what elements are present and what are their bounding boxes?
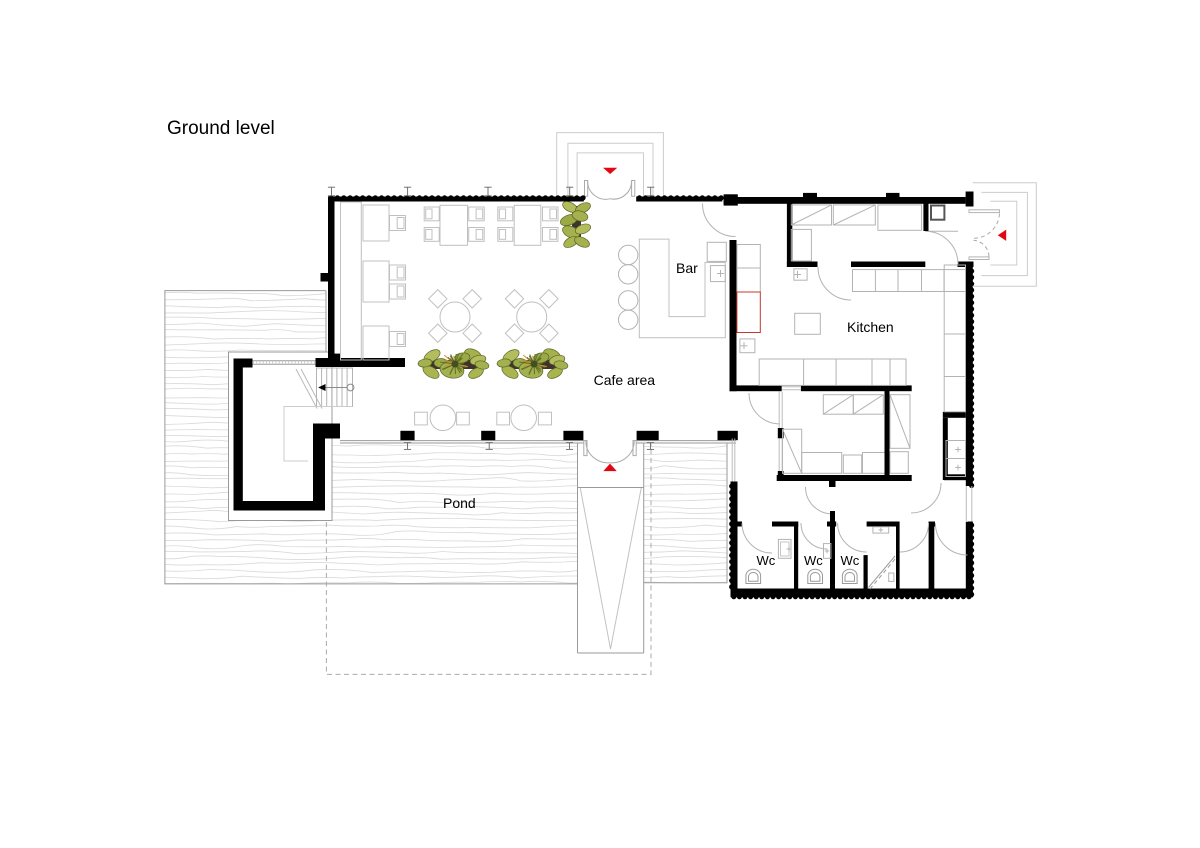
svg-text:Cafe area: Cafe area (594, 372, 656, 388)
svg-text:Bar: Bar (676, 260, 698, 276)
svg-text:Pond: Pond (443, 495, 476, 511)
svg-text:Ground level: Ground level (167, 118, 275, 139)
svg-text:Wc: Wc (757, 553, 776, 568)
svg-text:Kitchen: Kitchen (847, 319, 894, 335)
svg-text:Wc: Wc (841, 553, 860, 568)
svg-text:Wc: Wc (804, 553, 823, 568)
